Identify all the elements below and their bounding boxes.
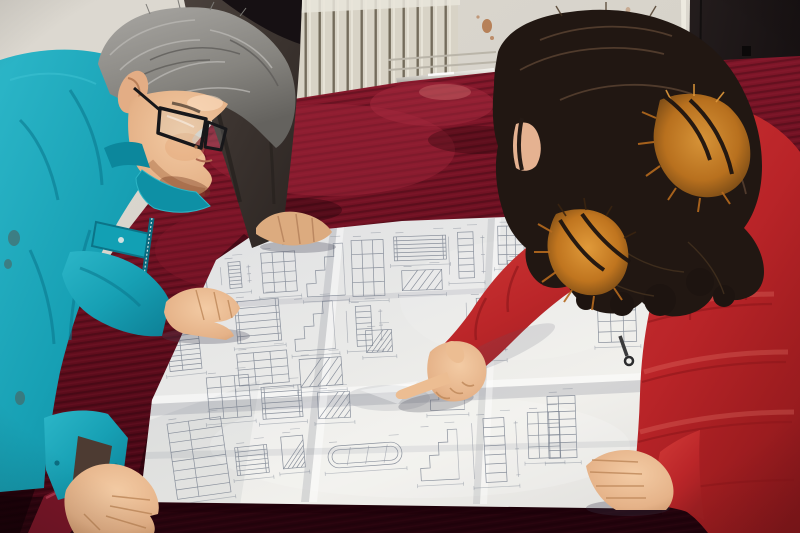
photo-canvas bbox=[0, 0, 800, 533]
photo-blueprint-review bbox=[0, 0, 800, 533]
vignette bbox=[0, 0, 800, 533]
